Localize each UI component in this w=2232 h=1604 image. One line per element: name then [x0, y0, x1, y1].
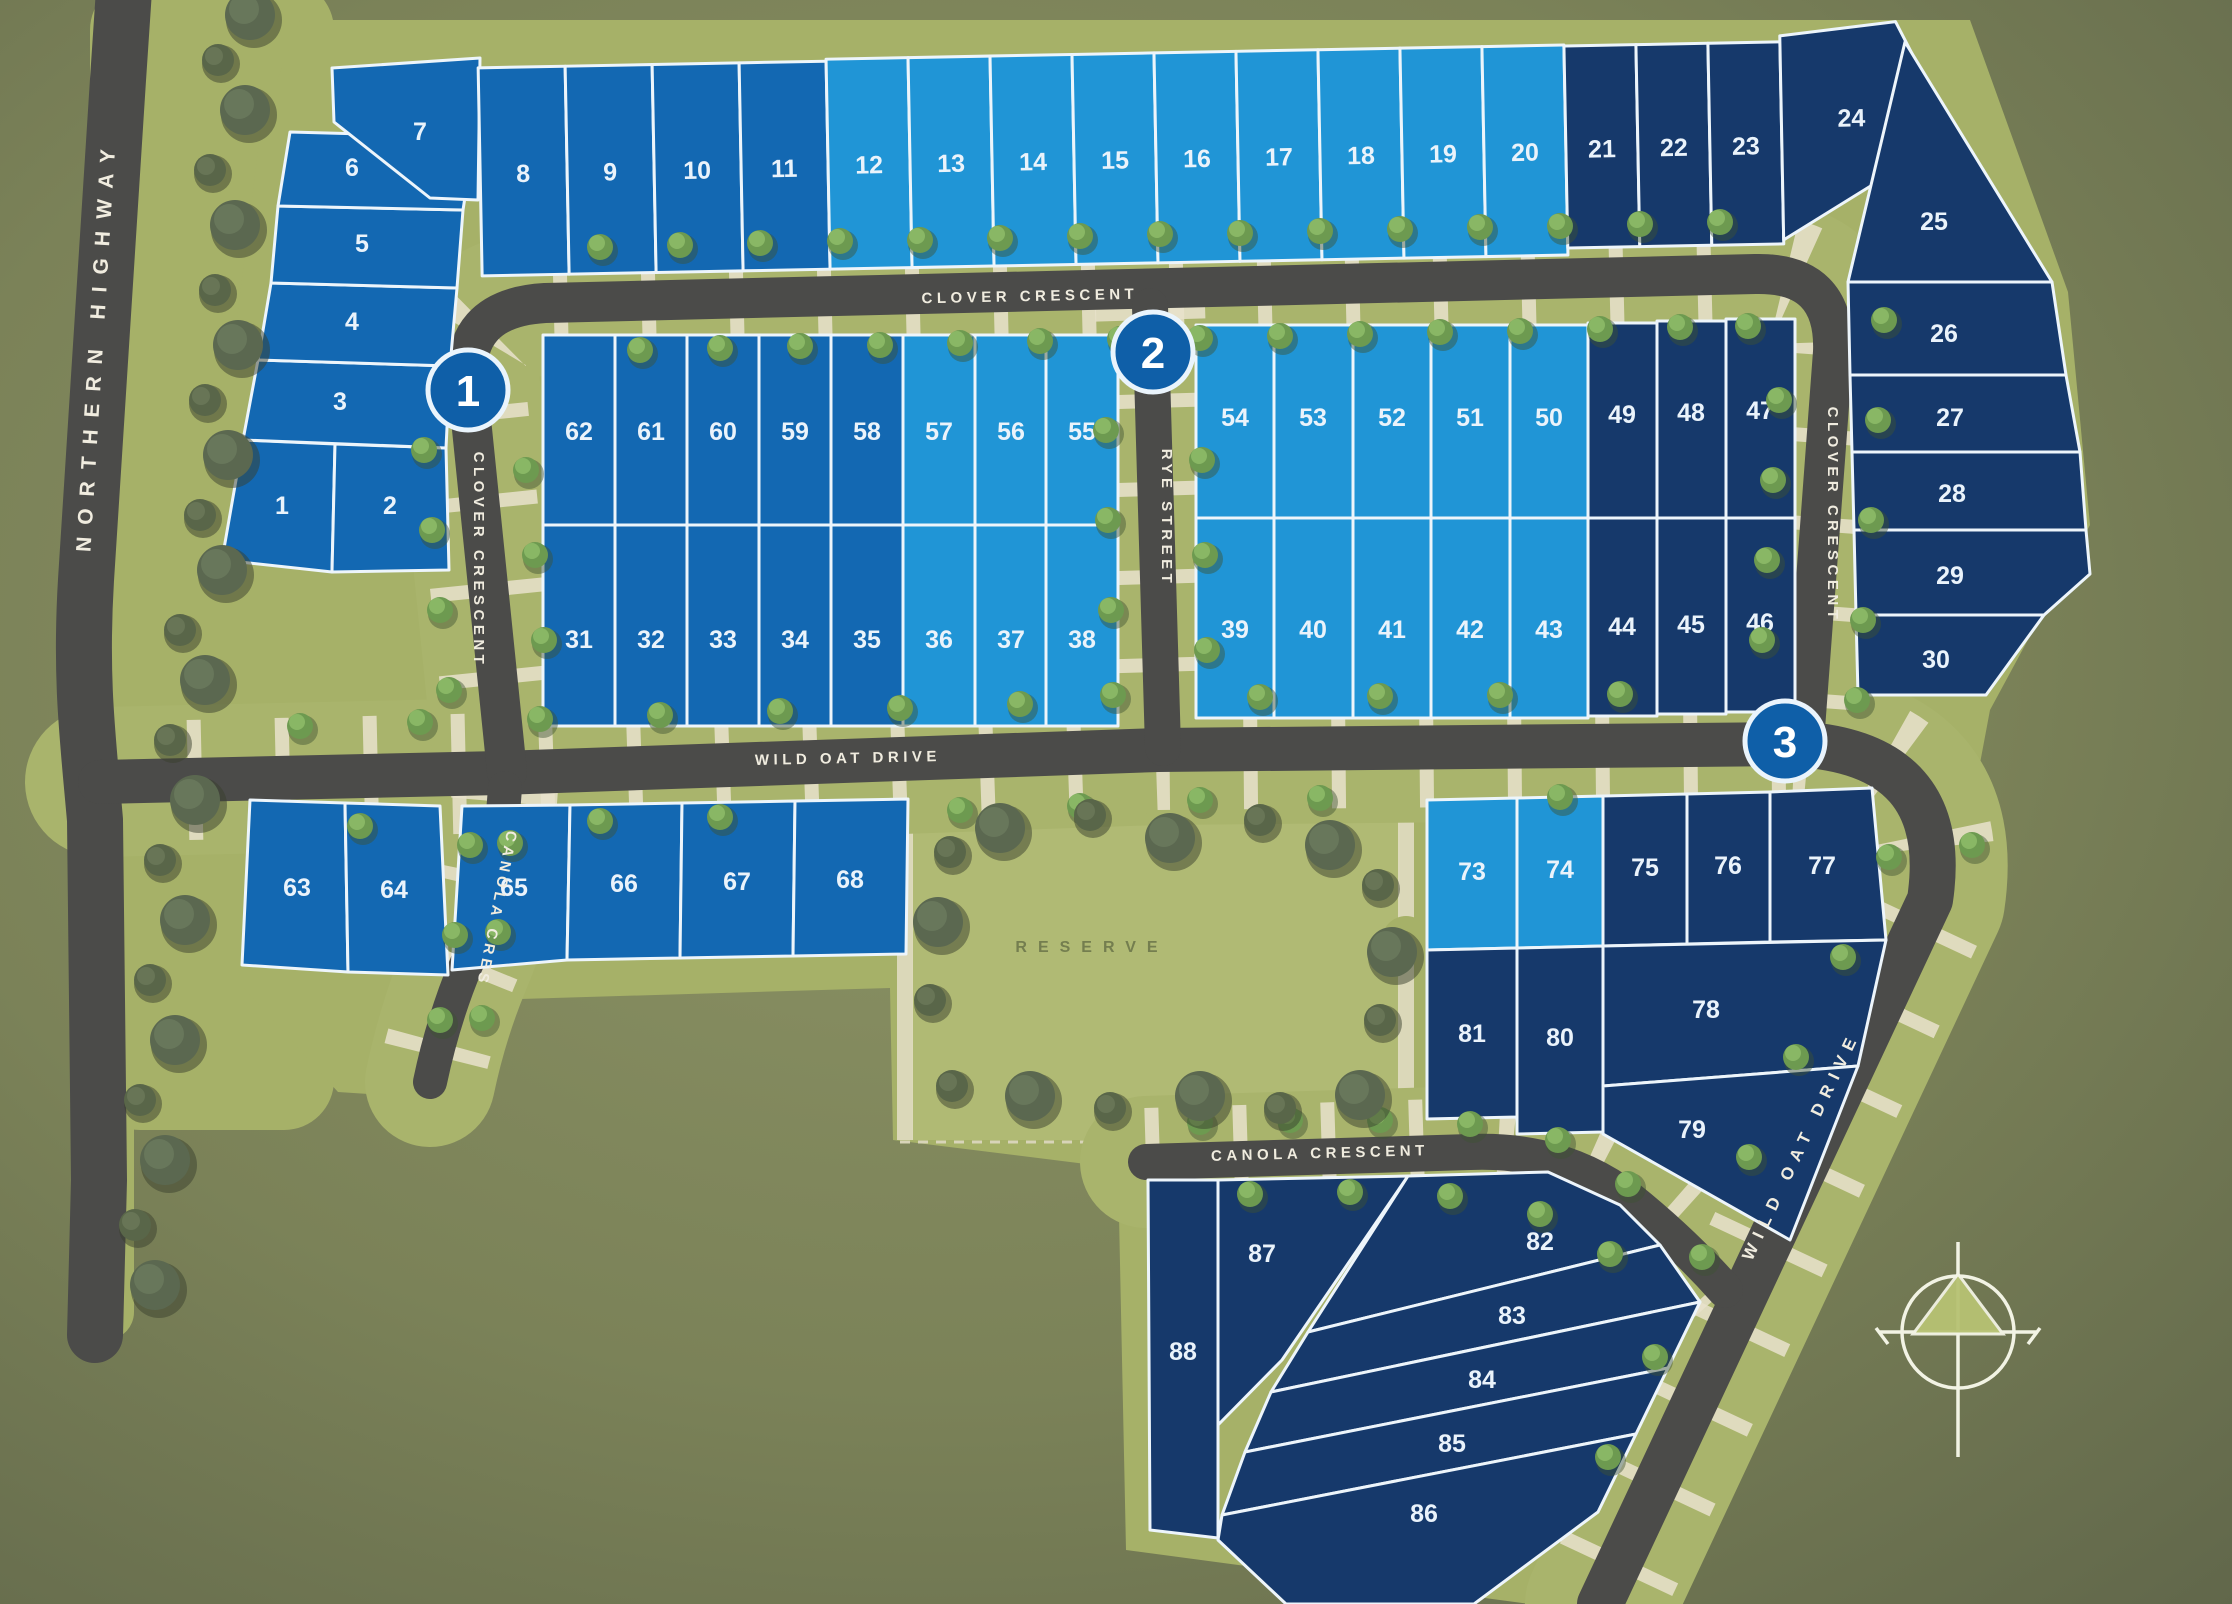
lot-59[interactable]: 59	[759, 335, 831, 525]
lot-35[interactable]: 35	[831, 525, 903, 726]
lot-30-number: 30	[1922, 646, 1950, 674]
lot-58-number: 58	[853, 418, 881, 446]
lot-78-number: 78	[1692, 996, 1720, 1024]
lot-29-number: 29	[1936, 562, 1964, 590]
stage-marker-3-number: 3	[1773, 718, 1797, 767]
lot-16-number: 16	[1183, 145, 1211, 174]
lot-43-number: 43	[1535, 616, 1563, 644]
lots-middle-east: 54 53 52 51 50 49 48 47 39 40 41 42 43 4…	[1196, 319, 1795, 718]
lot-74-number: 74	[1546, 856, 1574, 884]
lot-5[interactable]: 5	[271, 206, 463, 288]
lot-25-number: 25	[1920, 208, 1948, 236]
lot-77[interactable]: 77	[1770, 788, 1886, 942]
lot-14-number: 14	[1019, 148, 1047, 177]
lot-51-number: 51	[1456, 404, 1484, 432]
lot-57[interactable]: 57	[903, 335, 975, 525]
lot-32[interactable]: 32	[615, 525, 687, 726]
lot-42-number: 42	[1456, 616, 1484, 644]
lot-17-number: 17	[1265, 143, 1293, 172]
lot-24-number: 24	[1837, 104, 1865, 133]
lot-2-number: 2	[383, 492, 397, 520]
lot-54-number: 54	[1221, 404, 1249, 432]
lot-49[interactable]: 49	[1588, 323, 1657, 518]
lot-7-number: 7	[413, 118, 427, 146]
lot-52[interactable]: 52	[1353, 325, 1431, 518]
lot-40-number: 40	[1299, 616, 1327, 644]
lot-46[interactable]: 46	[1726, 518, 1795, 712]
lot-67-number: 67	[723, 868, 751, 896]
lot-35-number: 35	[853, 626, 881, 654]
lot-40[interactable]: 40	[1274, 518, 1353, 718]
lot-28-number: 28	[1938, 480, 1966, 508]
lot-33[interactable]: 33	[687, 525, 759, 726]
lot-19-number: 19	[1429, 140, 1457, 169]
street-label-rye-street: RYE STREET	[1158, 449, 1175, 588]
lot-62-number: 62	[565, 418, 593, 446]
lot-51[interactable]: 51	[1431, 325, 1510, 518]
lot-22-number: 22	[1660, 134, 1688, 163]
lot-9-number: 9	[603, 158, 617, 186]
lot-11-number: 11	[771, 155, 798, 184]
lot-48-number: 48	[1677, 399, 1705, 427]
lot-8-number: 8	[516, 160, 531, 188]
lot-6-number: 6	[345, 154, 359, 182]
lot-60-number: 60	[709, 418, 737, 446]
lot-80[interactable]: 80	[1517, 946, 1603, 1134]
stage-marker-2-number: 2	[1141, 329, 1165, 378]
lot-58[interactable]: 58	[831, 335, 903, 525]
lot-66[interactable]: 66	[567, 803, 682, 960]
lot-12-number: 12	[855, 151, 883, 180]
lot-3-number: 3	[333, 388, 347, 416]
lot-77-number: 77	[1808, 852, 1836, 880]
lots-middle-left: 62 61 60 59 58 57 56 55 31 32 33 34 35 3…	[543, 335, 1118, 726]
lot-68-number: 68	[836, 866, 864, 894]
lot-56-number: 56	[997, 418, 1025, 446]
lots-bottom-left: 63 64 65 66 67 68	[242, 799, 908, 975]
lot-88[interactable]: 88	[1148, 1180, 1218, 1538]
lot-76-number: 76	[1714, 852, 1742, 880]
lot-23-number: 23	[1732, 132, 1760, 161]
stage-marker-2[interactable]: 2	[1113, 312, 1193, 392]
lot-75[interactable]: 75	[1603, 794, 1687, 946]
lot-81-number: 81	[1458, 1020, 1486, 1048]
lot-63[interactable]: 63	[242, 800, 348, 972]
lot-3[interactable]: 3	[243, 360, 450, 448]
lot-59-number: 59	[781, 418, 809, 446]
lot-50[interactable]: 50	[1510, 325, 1588, 518]
reserve-label: RESERVE	[1015, 939, 1168, 956]
lot-50-number: 50	[1535, 404, 1563, 432]
lot-21[interactable]: 21	[1564, 45, 1640, 248]
lot-1-number: 1	[275, 492, 289, 520]
estate-masterplan: RESERVE 1 2 3 4 5 6 7 8 9 10	[0, 0, 2232, 1604]
lot-29[interactable]: 29	[1854, 530, 2090, 615]
lot-48[interactable]: 48	[1657, 321, 1726, 518]
stage-marker-1[interactable]: 1	[428, 350, 508, 430]
lot-86-number: 86	[1410, 1500, 1438, 1528]
lot-8[interactable]: 8	[478, 66, 569, 276]
lot-32-number: 32	[637, 626, 665, 654]
lot-73-number: 73	[1458, 858, 1486, 886]
lot-27-number: 27	[1936, 404, 1964, 432]
lot-81[interactable]: 81	[1427, 948, 1517, 1119]
lot-66-number: 66	[610, 870, 638, 898]
stage-marker-1-number: 1	[456, 367, 480, 416]
masterplan-svg: RESERVE 1 2 3 4 5 6 7 8 9 10	[0, 0, 2232, 1604]
lot-4-number: 4	[345, 308, 359, 336]
lot-49-number: 49	[1608, 401, 1636, 429]
lot-41-number: 41	[1378, 616, 1406, 644]
lot-64-number: 64	[380, 876, 408, 904]
lot-62[interactable]: 62	[543, 335, 615, 525]
lot-34-number: 34	[781, 626, 809, 654]
stage-marker-3[interactable]: 3	[1745, 701, 1825, 781]
lot-52-number: 52	[1378, 404, 1406, 432]
lot-45-number: 45	[1677, 611, 1705, 639]
lot-45[interactable]: 45	[1657, 518, 1726, 714]
lot-57-number: 57	[925, 418, 953, 446]
lot-63-number: 63	[283, 874, 311, 902]
lot-79-number: 79	[1678, 1116, 1706, 1144]
lot-26-number: 26	[1930, 320, 1958, 348]
lot-68[interactable]: 68	[793, 799, 908, 956]
lot-15-number: 15	[1101, 146, 1129, 175]
lot-76[interactable]: 76	[1687, 792, 1770, 944]
lot-37-number: 37	[997, 626, 1025, 654]
lot-73[interactable]: 73	[1427, 798, 1517, 950]
lot-33-number: 33	[709, 626, 737, 654]
lot-85-number: 85	[1438, 1430, 1466, 1458]
street-label-clover-crescent-west: CLOVER CRESCENT	[470, 452, 487, 669]
lot-21-number: 21	[1588, 135, 1616, 164]
lot-56[interactable]: 56	[975, 335, 1046, 525]
lot-88-number: 88	[1169, 1338, 1197, 1366]
lot-4[interactable]: 4	[258, 283, 457, 366]
lot-20-number: 20	[1511, 139, 1539, 168]
lot-38-number: 38	[1068, 626, 1096, 654]
lot-61-number: 61	[637, 418, 665, 446]
lot-13-number: 13	[937, 150, 965, 179]
lot-10-number: 10	[683, 156, 711, 185]
lot-44-number: 44	[1608, 613, 1636, 641]
lot-55-number: 55	[1068, 418, 1096, 446]
lot-84-number: 84	[1468, 1366, 1496, 1394]
lot-5-number: 5	[355, 230, 369, 258]
street-label-clover-crescent-east: CLOVER CRESCENT	[1824, 407, 1841, 624]
lot-80-number: 80	[1546, 1024, 1574, 1052]
lot-87-number: 87	[1248, 1240, 1276, 1268]
lot-36[interactable]: 36	[903, 525, 975, 726]
lot-36-number: 36	[925, 626, 953, 654]
lot-75-number: 75	[1631, 854, 1659, 882]
lot-18-number: 18	[1347, 142, 1375, 171]
lot-10[interactable]: 10	[652, 63, 743, 273]
lot-39-number: 39	[1221, 616, 1249, 644]
lot-53-number: 53	[1299, 404, 1327, 432]
lot-34[interactable]: 34	[759, 525, 831, 726]
lot-74[interactable]: 74	[1517, 796, 1603, 948]
lot-31[interactable]: 31	[543, 525, 615, 726]
lot-83-number: 83	[1498, 1302, 1526, 1330]
lot-43[interactable]: 43	[1510, 518, 1588, 718]
lot-31-number: 31	[565, 626, 593, 654]
